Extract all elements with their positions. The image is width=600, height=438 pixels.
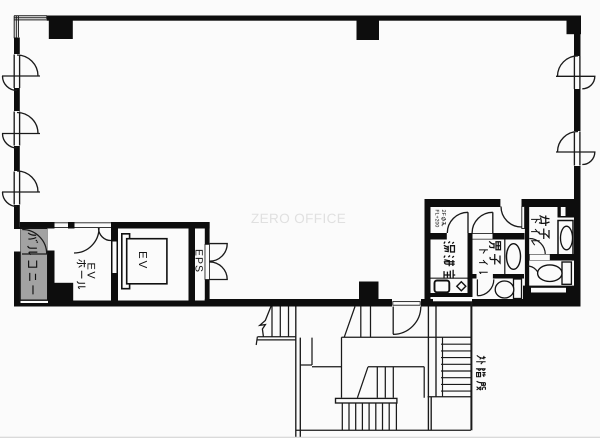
svg-text:EPS: EPS	[193, 249, 205, 273]
svg-text:EV: EV	[136, 251, 148, 270]
svg-text:ZERO OFFICE: ZERO OFFICE	[251, 211, 346, 226]
svg-text:2F: 2F	[440, 210, 446, 217]
svg-text:FL+200: FL+200	[434, 210, 440, 228]
svg-text:EV: EV	[85, 263, 97, 281]
